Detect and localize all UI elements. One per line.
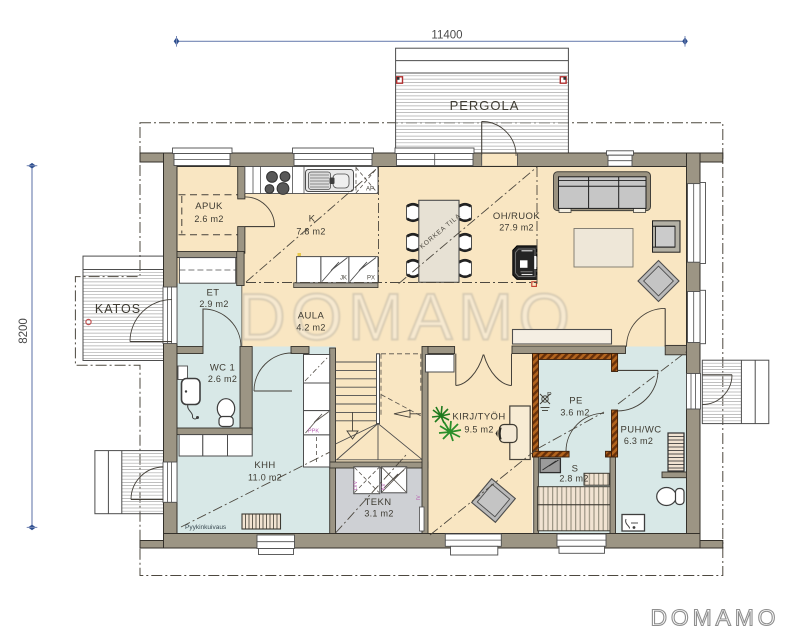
svg-text:4.2 m2: 4.2 m2 bbox=[296, 323, 325, 333]
svg-text:DOMAMO: DOMAMO bbox=[651, 605, 780, 631]
svg-text:Pyykinkuivaus: Pyykinkuivaus bbox=[185, 524, 227, 531]
svg-text:11.0 m2: 11.0 m2 bbox=[248, 473, 282, 483]
svg-text:2.9 m2: 2.9 m2 bbox=[199, 299, 228, 309]
svg-text:11400: 11400 bbox=[431, 30, 462, 42]
svg-text:OH/RUOK: OH/RUOK bbox=[493, 211, 540, 222]
svg-text:2.6 m2: 2.6 m2 bbox=[208, 374, 237, 384]
svg-text:3.1 m2: 3.1 m2 bbox=[364, 509, 393, 519]
svg-text:LVV: LVV bbox=[353, 480, 359, 490]
svg-text:3.6 m2: 3.6 m2 bbox=[560, 408, 589, 418]
svg-text:2.8 m2: 2.8 m2 bbox=[559, 474, 588, 484]
svg-text:KIRJ/TYÖH: KIRJ/TYÖH bbox=[452, 412, 505, 423]
svg-text:AP: AP bbox=[366, 187, 374, 193]
svg-text:AULA: AULA bbox=[298, 311, 325, 322]
svg-text:JK: JK bbox=[340, 276, 347, 282]
svg-text:ET: ET bbox=[207, 288, 220, 299]
svg-text:PPK: PPK bbox=[308, 429, 319, 435]
svg-text:7.8 m2: 7.8 m2 bbox=[296, 227, 325, 237]
svg-text:2.6 m2: 2.6 m2 bbox=[194, 214, 223, 224]
svg-text:PUH/WC: PUH/WC bbox=[621, 425, 662, 436]
svg-text:PERGOLA: PERGOLA bbox=[450, 98, 520, 113]
svg-text:KV: KV bbox=[381, 483, 387, 490]
svg-text:TEKN: TEKN bbox=[365, 497, 392, 508]
svg-text:27.9 m2: 27.9 m2 bbox=[499, 223, 534, 233]
svg-text:PE: PE bbox=[569, 396, 582, 407]
svg-text:9.5 m2: 9.5 m2 bbox=[464, 425, 493, 435]
svg-text:APUK: APUK bbox=[195, 201, 223, 212]
svg-text:KATOS: KATOS bbox=[95, 302, 141, 316]
svg-text:6.3 m2: 6.3 m2 bbox=[624, 436, 653, 446]
svg-text:KHH: KHH bbox=[254, 460, 275, 471]
svg-text:K: K bbox=[309, 214, 316, 225]
svg-text:8200: 8200 bbox=[18, 318, 30, 344]
svg-text:IV: IV bbox=[416, 495, 422, 500]
svg-text:PX: PX bbox=[367, 276, 375, 282]
svg-text:P: P bbox=[547, 392, 552, 399]
svg-text:WC 1: WC 1 bbox=[210, 363, 235, 374]
